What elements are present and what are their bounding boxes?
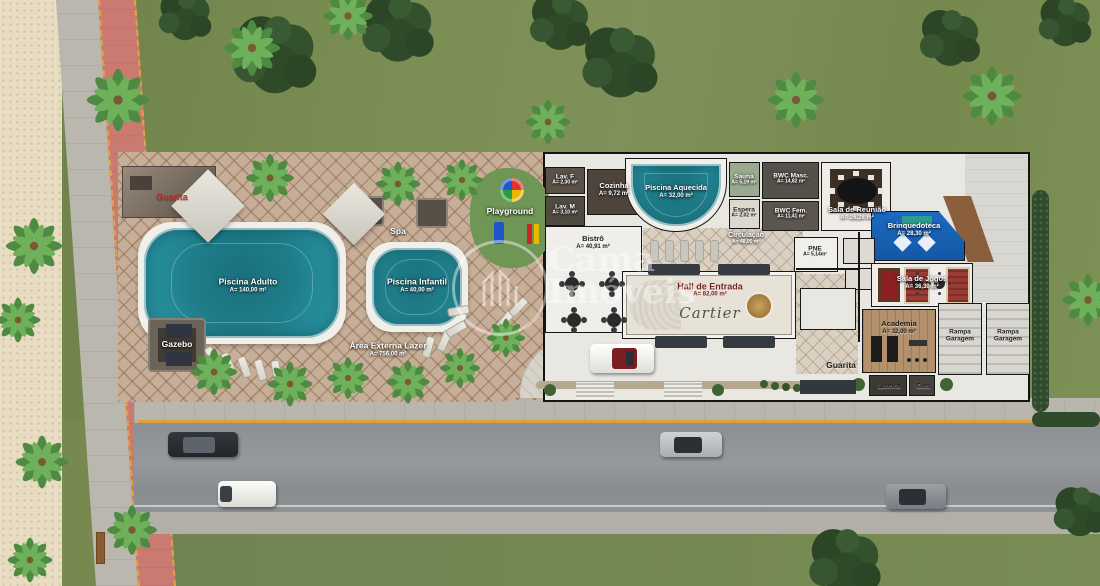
- label-lixeira: Lixeira: [878, 383, 901, 391]
- guardhouse-top-panel: [130, 176, 152, 190]
- label-guarita-top: Guarita: [156, 192, 188, 202]
- hall-medallion: [747, 294, 771, 318]
- hall-bench: [655, 336, 707, 348]
- label-academia: AcademiaA= 32,00 m²: [881, 320, 916, 336]
- label-rampa-1: RampaGaragem: [946, 329, 974, 344]
- palm-tree-icon: [436, 154, 488, 206]
- playground-slide: [494, 222, 504, 244]
- palm-tree-icon: [101, 499, 163, 561]
- label-playground: Playground: [487, 207, 534, 217]
- palm-tree-icon: [9, 429, 75, 495]
- palm-tree-icon: [262, 356, 318, 412]
- entrance-mat: [800, 380, 856, 394]
- label-sala-reuniao: Sala de ReuniãoA= 26,28 m²: [828, 206, 886, 222]
- label-lav-m: Lav. MA= 3,10 m²: [552, 203, 577, 216]
- median-tree: [712, 384, 724, 396]
- palm-tree-icon: [370, 156, 426, 212]
- hall-bench: [648, 264, 700, 275]
- palm-tree-icon: [0, 211, 69, 281]
- lane-marking: [134, 505, 1100, 507]
- hedge-horizontal: [1032, 412, 1100, 427]
- label-pne: PNEA= 5,14m²: [803, 245, 827, 258]
- label-circulacao: CirculaçãoA= 48,00 m²: [728, 232, 764, 246]
- car-convertible-parked: [590, 344, 654, 373]
- label-espera: EsperaA= 2,02 m²: [731, 206, 756, 219]
- label-hall-entrada: Hall de EntradaA= 82,00 m²: [677, 281, 743, 298]
- tree-icon: [150, 0, 220, 49]
- car-dark-sedan: [168, 432, 238, 457]
- palm-tree-icon: [240, 148, 300, 208]
- tree-icon: [1045, 475, 1100, 545]
- palm-tree-icon: [482, 314, 530, 362]
- label-sala-jogos: Sala de JogosA= 36,30 m²: [897, 275, 947, 291]
- label-area-externa: Área Externa LazerA= 756,00 m²: [349, 342, 426, 359]
- tree-icon: [1030, 0, 1100, 55]
- hall-inlay-script: Cartier: [679, 304, 740, 322]
- palm-tree-icon: [435, 343, 485, 393]
- hedge-row: [760, 380, 768, 388]
- palm-tree-icon: [317, 0, 379, 47]
- tree-icon: [798, 513, 893, 586]
- label-piscina-adulto: Piscina AdultoA= 140,00 m²: [219, 278, 278, 295]
- palm-tree-icon: [0, 292, 46, 348]
- label-piscina-aquecida: Piscina AquecidaA= 32,00 m²: [645, 184, 707, 200]
- hall-bench: [718, 264, 770, 275]
- palm-tree-icon: [217, 13, 287, 83]
- label-gas: Gás: [916, 383, 929, 391]
- palm-tree-icon: [1056, 268, 1100, 332]
- car-gray-sedan: [886, 484, 946, 509]
- label-spa: Spa: [390, 227, 406, 237]
- sidewalk-far: [134, 512, 1100, 534]
- playground-bars: [534, 224, 539, 244]
- entrance-steps: [576, 382, 614, 399]
- curb-yellow-line: [138, 420, 1100, 423]
- palm-tree-icon: [381, 355, 435, 409]
- label-cozinha: CozinhaA= 9,72 m²: [599, 182, 629, 198]
- palm-tree-icon: [185, 343, 243, 401]
- hall-bench: [723, 336, 775, 348]
- label-gazebo: Gazebo: [162, 340, 193, 350]
- car-silver-sedan: [660, 432, 722, 457]
- label-lav-f: Lav. FA= 2,30 m²: [552, 173, 577, 186]
- street: [134, 423, 1100, 512]
- site-plan: Guarita Spa Playground Piscina AdultoA= …: [0, 0, 1100, 586]
- label-bistro: BistrôA= 40,91 m²: [576, 235, 610, 251]
- palm-tree-icon: [955, 59, 1029, 133]
- label-sauna: SaunaA= 5,19 m²: [731, 173, 756, 186]
- label-brinquedoteca: BrinquedotecaA= 28,30 m²: [888, 222, 941, 238]
- tree-icon: [520, 0, 600, 60]
- playground-bars: [527, 224, 532, 244]
- median-tree: [544, 384, 556, 396]
- guardhouse-bottom: [800, 288, 856, 330]
- planter-tree: [940, 378, 953, 391]
- palm-tree-icon: [322, 352, 374, 404]
- label-rampa-2: RampaGaragem: [994, 329, 1022, 344]
- label-bwc-fem: BWC Fem.A= 11,41 m²: [775, 207, 808, 220]
- hedge-vertical: [1032, 190, 1049, 412]
- playground-carousel: [500, 178, 524, 202]
- car-white-truck: [218, 481, 276, 507]
- label-bwc-masc: BWC Masc.A= 14,82 m²: [773, 172, 808, 185]
- label-piscina-infantil: Piscina InfantilA= 40,00 m²: [387, 278, 447, 295]
- palm-tree-icon: [761, 65, 831, 135]
- palm-tree-icon: [2, 532, 58, 586]
- palm-tree-icon: [520, 94, 576, 150]
- entrance-steps: [664, 382, 702, 399]
- label-guarita-bottom: Guarita: [826, 361, 856, 371]
- palm-tree-icon: [79, 61, 157, 139]
